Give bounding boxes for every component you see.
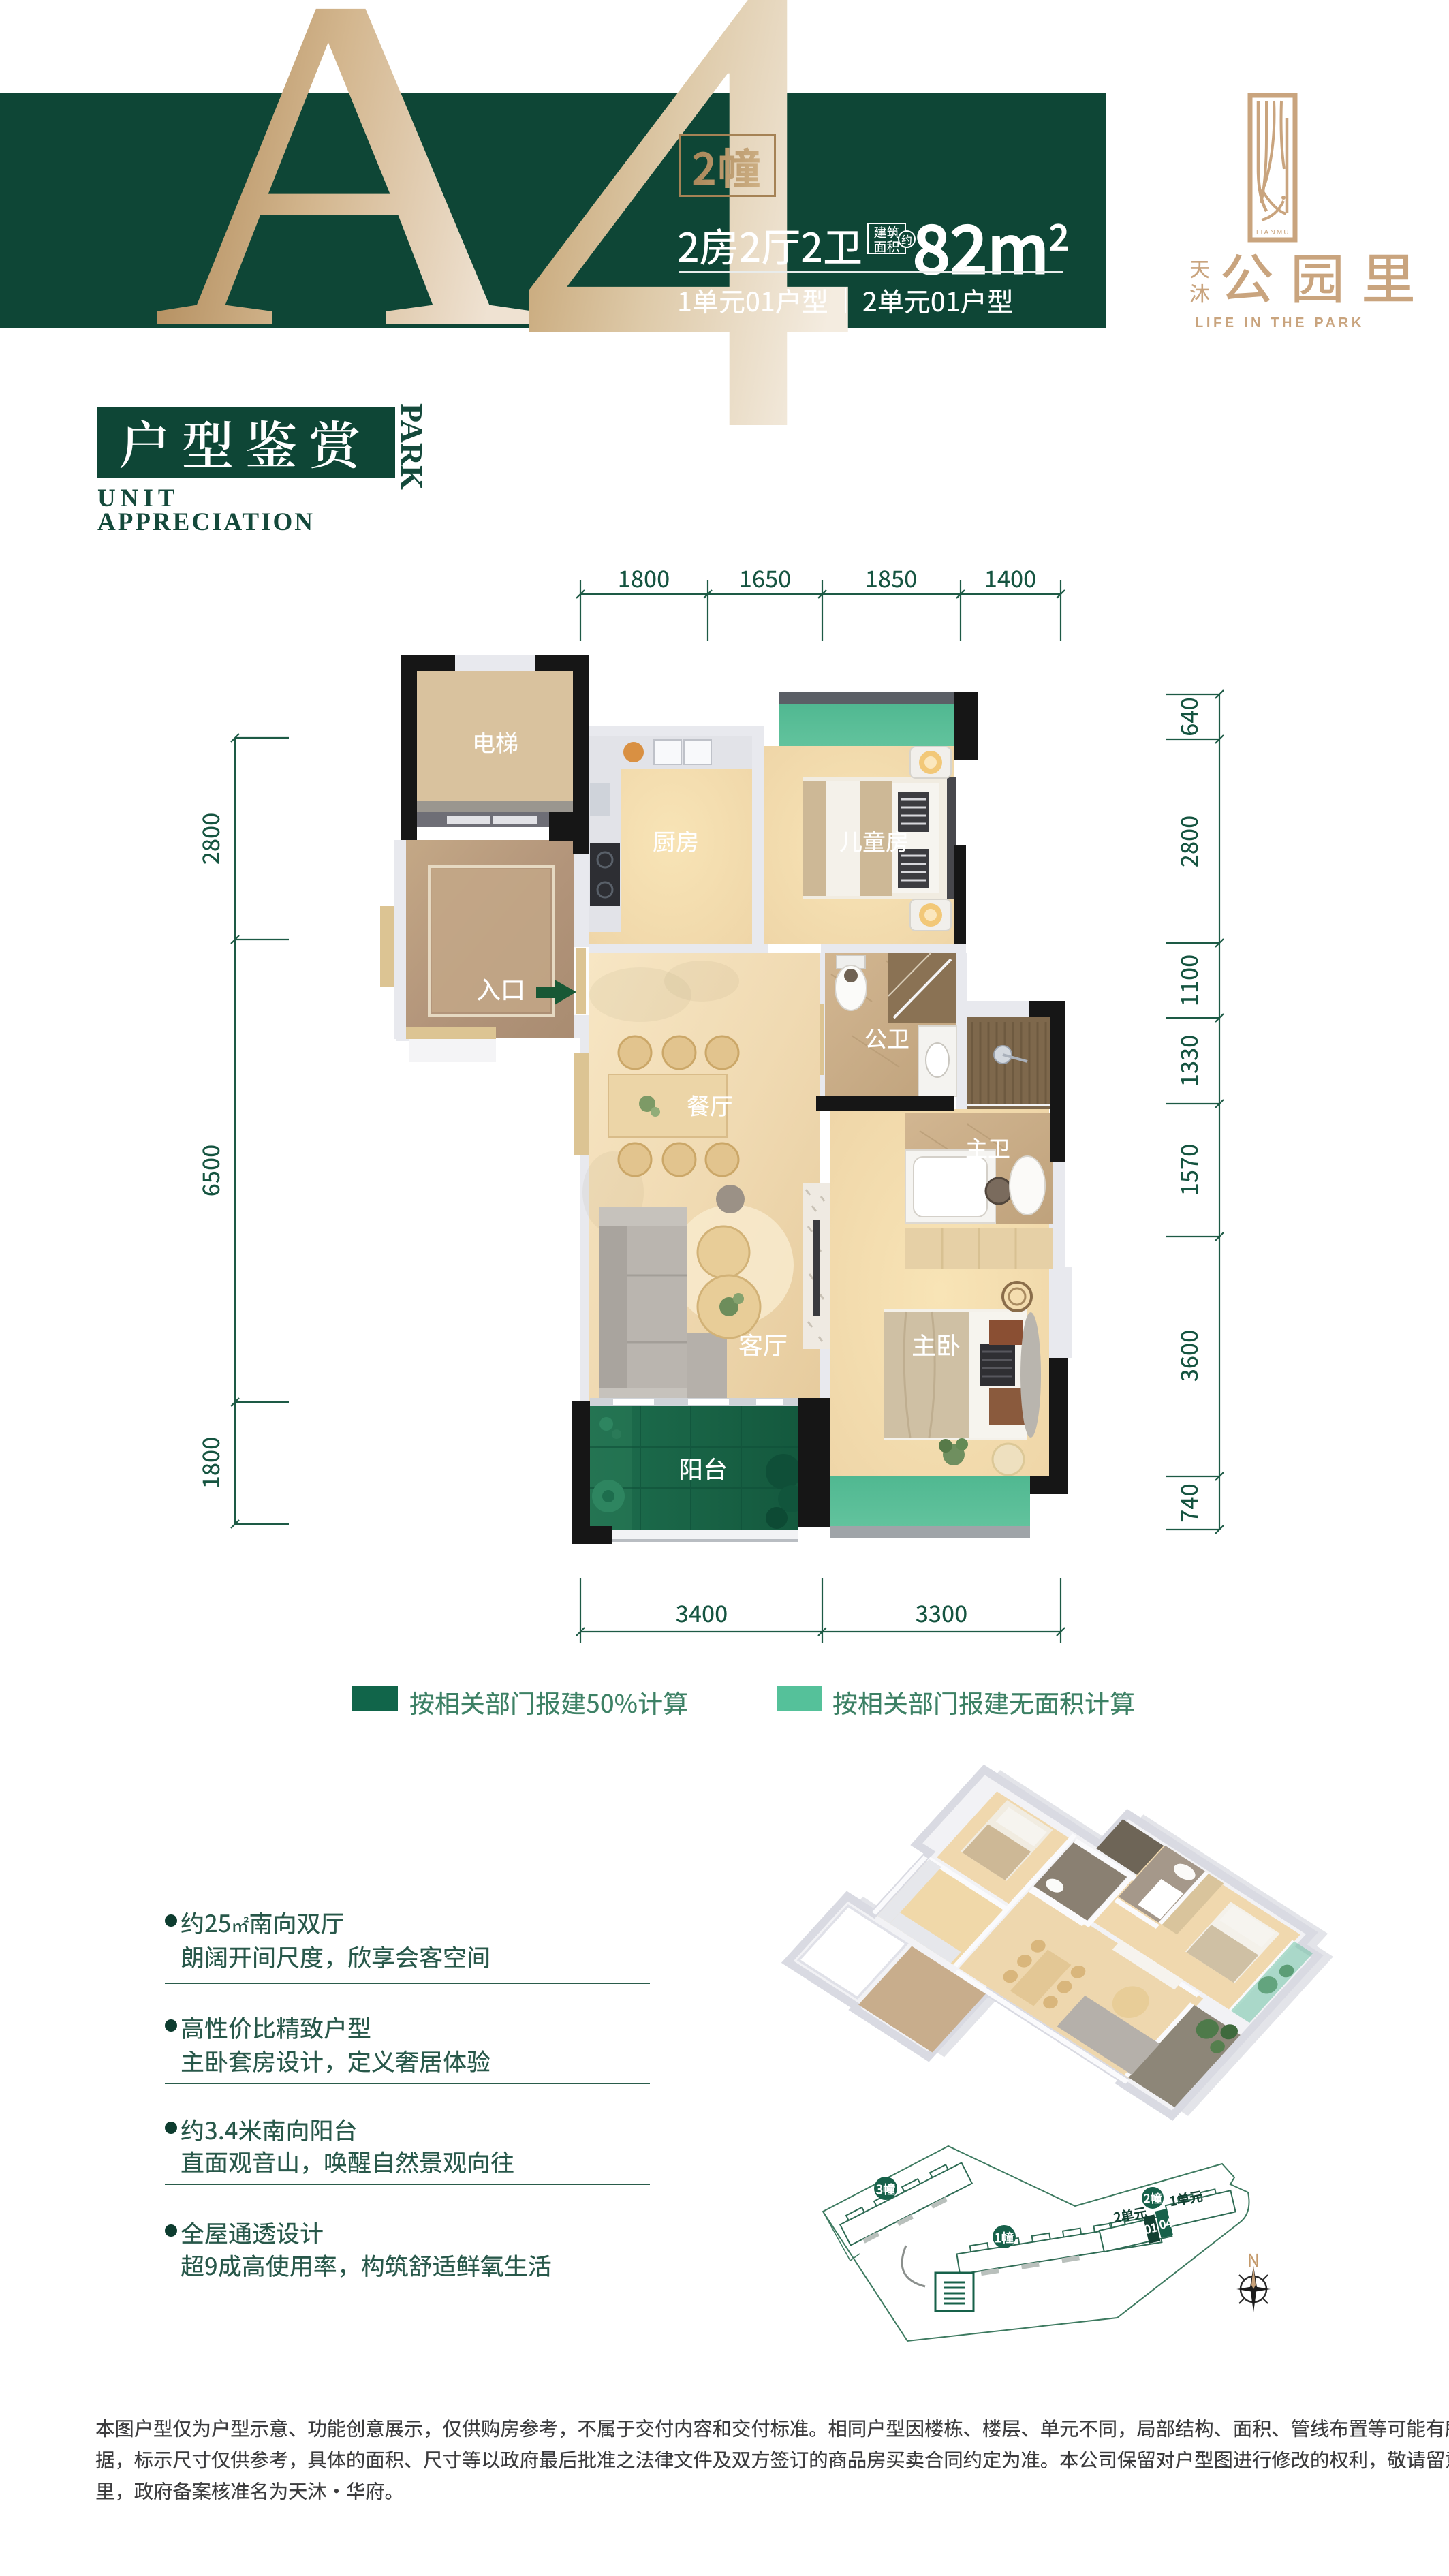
svg-text:1幢: 1幢 bbox=[995, 2229, 1014, 2246]
svg-text:3幢: 3幢 bbox=[876, 2180, 895, 2198]
svg-text:2幢: 2幢 bbox=[1144, 2189, 1162, 2206]
